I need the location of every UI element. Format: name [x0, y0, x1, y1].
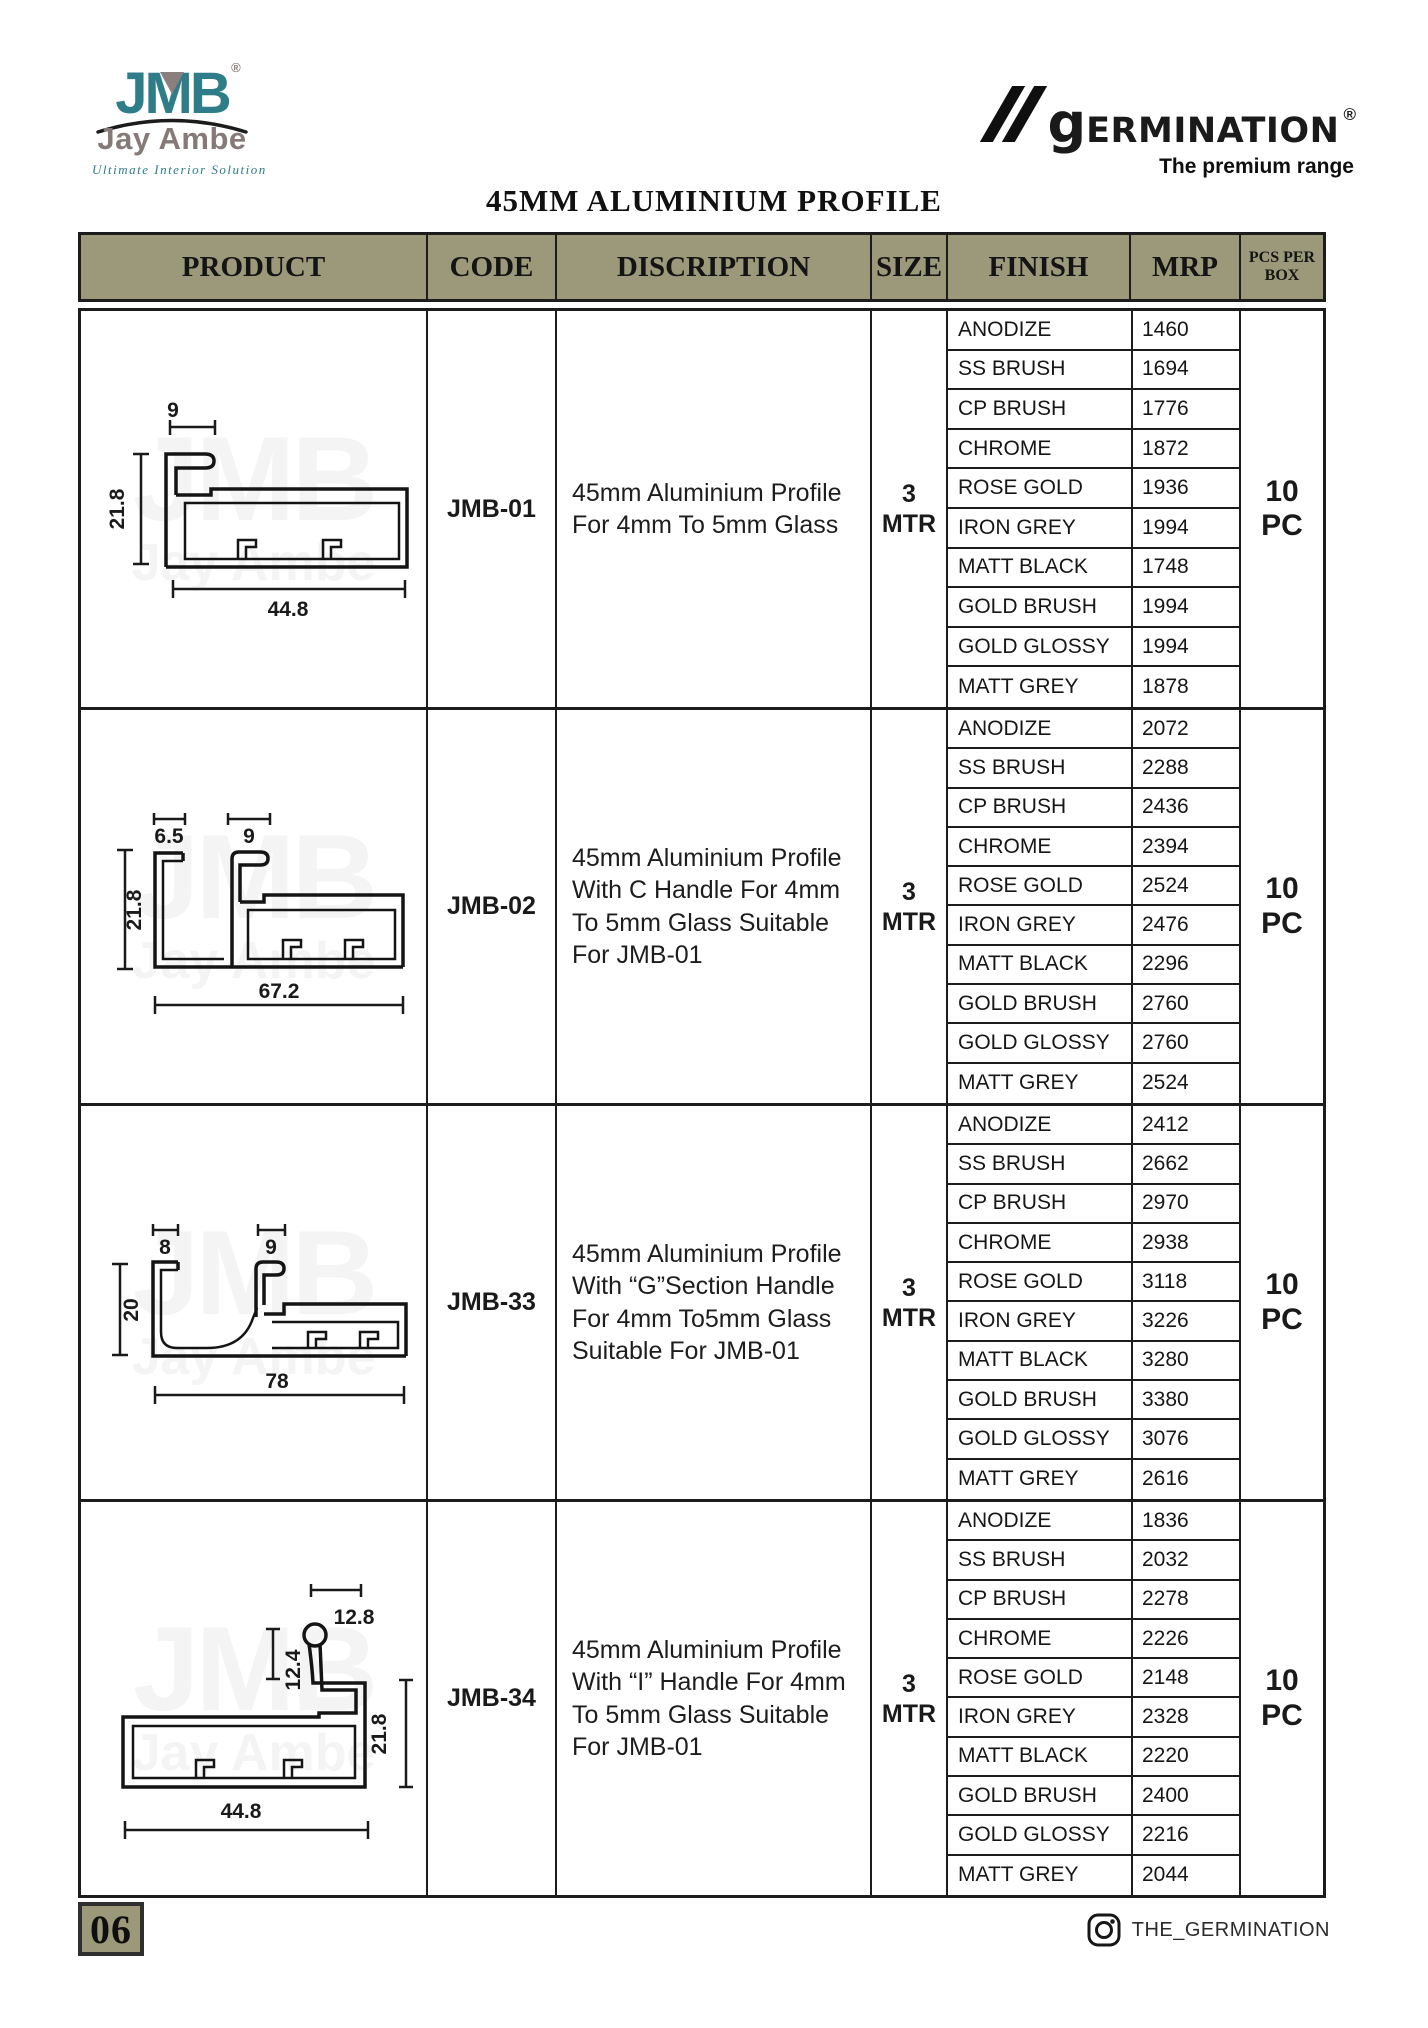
mrp-cell: 2032 — [1131, 1541, 1241, 1580]
code-cell: JMB-33 — [426, 1106, 555, 1499]
page-number-badge: 06 — [78, 1902, 144, 1956]
mrp-cell: 1994 — [1131, 509, 1241, 549]
svg-text:67.2: 67.2 — [259, 980, 300, 1003]
instagram-icon — [1086, 1912, 1122, 1948]
finish-cell: SS BRUSH — [948, 749, 1131, 788]
finish-cell: CHROME — [948, 1224, 1131, 1263]
jmb-logo-wordmark: JMB ® — [115, 66, 228, 121]
price-table: PRODUCT CODE DISCRIPTION SIZE FINISH MRP… — [78, 232, 1326, 1898]
mrp-cell: 2970 — [1131, 1185, 1241, 1224]
svg-text:9: 9 — [265, 1236, 277, 1259]
mrp-cell: 2760 — [1131, 985, 1241, 1024]
svg-text:8: 8 — [159, 1236, 171, 1259]
product-drawing-cell: JMB Jay Ambe 9 21.8 44.8 — [81, 311, 426, 707]
product-drawing-cell: JMB Jay Ambe 8 9 20 — [81, 1106, 426, 1499]
mrp-cell: 1878 — [1131, 667, 1241, 707]
finish-cell: IRON GREY — [948, 1698, 1131, 1737]
germination-logo: g ERMINATION ® The premium range — [996, 86, 1356, 179]
mrp-cell: 2616 — [1131, 1460, 1241, 1499]
finish-cell: SS BRUSH — [948, 1541, 1131, 1580]
mrp-cell: 2662 — [1131, 1145, 1241, 1184]
jmb-logo: JMB ® Jay Ambe Ultimate Interior Solutio… — [92, 66, 252, 178]
mrp-cell: 1836 — [1131, 1502, 1241, 1541]
finish-cell: ROSE GOLD — [948, 867, 1131, 906]
finish-cell: GOLD GLOSSY — [948, 628, 1131, 668]
finish-cell: ANODIZE — [948, 710, 1131, 749]
size-value: 3 — [902, 1273, 916, 1303]
catalog-page: JMB ® Jay Ambe Ultimate Interior Solutio… — [0, 0, 1428, 2028]
svg-text:12.4: 12.4 — [282, 1649, 305, 1690]
mrp-cell: 1994 — [1131, 588, 1241, 628]
svg-text:21.8: 21.8 — [368, 1713, 391, 1754]
mrp-cell: 2400 — [1131, 1777, 1241, 1816]
finish-cell: GOLD BRUSH — [948, 1381, 1131, 1420]
finish-cell: CP BRUSH — [948, 789, 1131, 828]
svg-text:21.8: 21.8 — [106, 488, 129, 529]
pcs-value: 10 — [1265, 1664, 1298, 1699]
svg-text:78: 78 — [265, 1370, 289, 1393]
size-cell: 3 MTR — [870, 1106, 946, 1499]
svg-text:9: 9 — [243, 825, 255, 848]
finish-cell: CP BRUSH — [948, 1185, 1131, 1224]
size-cell: 3 MTR — [870, 710, 946, 1103]
finish-mrp-table: ANODIZE 2072 SS BRUSH 2288 CP BRUSH 2436… — [946, 710, 1239, 1103]
profile-drawing-jmb-02: 6.5 9 21.8 67.2 — [81, 710, 426, 1106]
col-header-product: PRODUCT — [81, 235, 426, 299]
description-cell: 45mm Aluminium Profile For 4mm To 5mm Gl… — [555, 311, 870, 707]
mrp-cell: 1460 — [1131, 311, 1241, 351]
pcs-value: 10 — [1265, 1268, 1298, 1303]
svg-text:44.8: 44.8 — [268, 598, 309, 621]
code-cell: JMB-02 — [426, 710, 555, 1103]
mrp-cell: 2412 — [1131, 1106, 1241, 1145]
mrp-cell: 3226 — [1131, 1302, 1241, 1341]
finish-cell: GOLD BRUSH — [948, 985, 1131, 1024]
jmb-brand-name: Jay Ambe — [92, 121, 252, 157]
finish-cell: ROSE GOLD — [948, 1263, 1131, 1302]
mrp-cell: 3380 — [1131, 1381, 1241, 1420]
mrp-cell: 2760 — [1131, 1024, 1241, 1063]
mrp-cell: 2328 — [1131, 1698, 1241, 1737]
table-row: JMB Jay Ambe 6.5 9 21.8 — [81, 707, 1323, 1103]
pcs-unit: PC — [1261, 1303, 1303, 1338]
svg-text:21.8: 21.8 — [123, 889, 146, 930]
size-value: 3 — [902, 479, 916, 509]
page-title: 45MM ALUMINIUM PROFILE — [0, 183, 1428, 219]
pcs-cell: 10 PC — [1239, 1502, 1323, 1895]
finish-cell: SS BRUSH — [948, 351, 1131, 391]
finish-cell: IRON GREY — [948, 509, 1131, 549]
finish-cell: ANODIZE — [948, 1502, 1131, 1541]
germination-wordmark: ERMINATION — [1086, 111, 1339, 151]
pcs-unit: PC — [1261, 907, 1303, 942]
finish-cell: CP BRUSH — [948, 390, 1131, 430]
finish-cell: MATT BLACK — [948, 549, 1131, 589]
pcs-value: 10 — [1265, 475, 1298, 510]
size-value: 3 — [902, 877, 916, 907]
pcs-cell: 10 PC — [1239, 311, 1323, 707]
finish-mrp-table: ANODIZE 1836 SS BRUSH 2032 CP BRUSH 2278… — [946, 1502, 1239, 1895]
col-header-finish: FINISH — [946, 235, 1129, 299]
finish-cell: CHROME — [948, 430, 1131, 470]
table-body: JMB Jay Ambe 9 21.8 44.8 — [78, 308, 1326, 1898]
finish-cell: GOLD BRUSH — [948, 588, 1131, 628]
mrp-cell: 2476 — [1131, 906, 1241, 945]
mrp-cell: 1694 — [1131, 351, 1241, 391]
description-cell: 45mm Aluminium Profile With C Handle For… — [555, 710, 870, 1103]
finish-cell: CHROME — [948, 1620, 1131, 1659]
description-cell: 45mm Aluminium Profile With “G”Section H… — [555, 1106, 870, 1499]
finish-cell: CP BRUSH — [948, 1581, 1131, 1620]
size-unit: MTR — [882, 509, 936, 539]
svg-text:6.5: 6.5 — [154, 825, 184, 848]
finish-cell: ROSE GOLD — [948, 469, 1131, 509]
pcs-unit: PC — [1261, 509, 1303, 544]
col-header-discription: DISCRIPTION — [555, 235, 870, 299]
finish-cell: MATT GREY — [948, 1064, 1131, 1103]
finish-cell: MATT BLACK — [948, 946, 1131, 985]
size-unit: MTR — [882, 1699, 936, 1729]
finish-cell: SS BRUSH — [948, 1145, 1131, 1184]
table-header-row: PRODUCT CODE DISCRIPTION SIZE FINISH MRP… — [78, 232, 1326, 302]
mrp-cell: 1994 — [1131, 628, 1241, 668]
finish-cell: ANODIZE — [948, 311, 1131, 351]
jmb-registered-mark: ® — [231, 62, 241, 74]
finish-mrp-table: ANODIZE 1460 SS BRUSH 1694 CP BRUSH 1776… — [946, 311, 1239, 707]
svg-text:20: 20 — [120, 1298, 143, 1321]
size-value: 3 — [902, 1669, 916, 1699]
mrp-cell: 2524 — [1131, 1064, 1241, 1103]
col-header-size: SIZE — [870, 235, 946, 299]
jmb-logo-triangle-icon — [160, 72, 184, 94]
col-header-pcs-per-box: PCS PER BOX — [1239, 235, 1323, 299]
mrp-cell: 2072 — [1131, 710, 1241, 749]
profile-drawing-jmb-34: 12.8 12.4 21.8 44.8 — [81, 1502, 426, 1898]
col-header-code: CODE — [426, 235, 555, 299]
germination-g: g — [1047, 104, 1086, 145]
finish-cell: GOLD GLOSSY — [948, 1816, 1131, 1855]
description-cell: 45mm Aluminium Profile With “I” Handle F… — [555, 1502, 870, 1895]
mrp-cell: 1872 — [1131, 430, 1241, 470]
finish-cell: GOLD GLOSSY — [948, 1024, 1131, 1063]
pcs-cell: 10 PC — [1239, 710, 1323, 1103]
mrp-cell: 2394 — [1131, 828, 1241, 867]
mrp-cell: 3076 — [1131, 1420, 1241, 1459]
mrp-cell: 3280 — [1131, 1342, 1241, 1381]
finish-cell: ANODIZE — [948, 1106, 1131, 1145]
code-cell: JMB-01 — [426, 311, 555, 707]
finish-cell: IRON GREY — [948, 1302, 1131, 1341]
pcs-unit: PC — [1261, 1699, 1303, 1734]
svg-text:12.8: 12.8 — [334, 1606, 375, 1629]
product-drawing-cell: JMB Jay Ambe 6.5 9 21.8 — [81, 710, 426, 1103]
profile-drawing-jmb-33: 8 9 20 78 — [81, 1106, 426, 1502]
table-row: JMB Jay Ambe 9 21.8 44.8 — [81, 311, 1323, 707]
size-cell: 3 MTR — [870, 1502, 946, 1895]
finish-cell: GOLD GLOSSY — [948, 1420, 1131, 1459]
mrp-cell: 1936 — [1131, 469, 1241, 509]
size-unit: MTR — [882, 907, 936, 937]
pcs-value: 10 — [1265, 872, 1298, 907]
instagram-handle: THE_GERMINATION — [1132, 1919, 1330, 1942]
mrp-cell: 3118 — [1131, 1263, 1241, 1302]
finish-cell: MATT GREY — [948, 667, 1131, 707]
finish-cell: MATT BLACK — [948, 1738, 1131, 1777]
mrp-cell: 2436 — [1131, 789, 1241, 828]
finish-cell: IRON GREY — [948, 906, 1131, 945]
finish-mrp-table: ANODIZE 2412 SS BRUSH 2662 CP BRUSH 2970… — [946, 1106, 1239, 1499]
finish-cell: GOLD BRUSH — [948, 1777, 1131, 1816]
product-drawing-cell: JMB Jay Ambe 12.8 12.4 21. — [81, 1502, 426, 1895]
mrp-cell: 2148 — [1131, 1659, 1241, 1698]
mrp-cell: 2288 — [1131, 749, 1241, 788]
germination-tagline: The premium range — [996, 155, 1356, 179]
finish-cell: ROSE GOLD — [948, 1659, 1131, 1698]
mrp-cell: 2044 — [1131, 1856, 1241, 1895]
size-unit: MTR — [882, 1303, 936, 1333]
svg-text:44.8: 44.8 — [221, 1800, 262, 1823]
germination-registered-mark: ® — [1343, 105, 1356, 125]
table-row: JMB Jay Ambe 8 9 20 — [81, 1103, 1323, 1499]
pcs-cell: 10 PC — [1239, 1106, 1323, 1499]
code-cell: JMB-34 — [426, 1502, 555, 1895]
table-row: JMB Jay Ambe 12.8 12.4 21. — [81, 1499, 1323, 1895]
svg-text:9: 9 — [167, 399, 179, 422]
size-cell: 3 MTR — [870, 311, 946, 707]
finish-cell: CHROME — [948, 828, 1131, 867]
finish-cell: MATT BLACK — [948, 1342, 1131, 1381]
mrp-cell: 1748 — [1131, 549, 1241, 589]
col-header-mrp: MRP — [1129, 235, 1239, 299]
mrp-cell: 2226 — [1131, 1620, 1241, 1659]
mrp-cell: 2938 — [1131, 1224, 1241, 1263]
instagram-row: THE_GERMINATION — [1086, 1912, 1330, 1948]
finish-cell: MATT GREY — [948, 1856, 1131, 1895]
mrp-cell: 2278 — [1131, 1581, 1241, 1620]
mrp-cell: 1776 — [1131, 390, 1241, 430]
mrp-cell: 2216 — [1131, 1816, 1241, 1855]
finish-cell: MATT GREY — [948, 1460, 1131, 1499]
mrp-cell: 2220 — [1131, 1738, 1241, 1777]
mrp-cell: 2296 — [1131, 946, 1241, 985]
jmb-tagline: Ultimate Interior Solution — [92, 162, 252, 178]
profile-drawing-jmb-01: 9 21.8 44.8 — [81, 311, 426, 707]
mrp-cell: 2524 — [1131, 867, 1241, 906]
